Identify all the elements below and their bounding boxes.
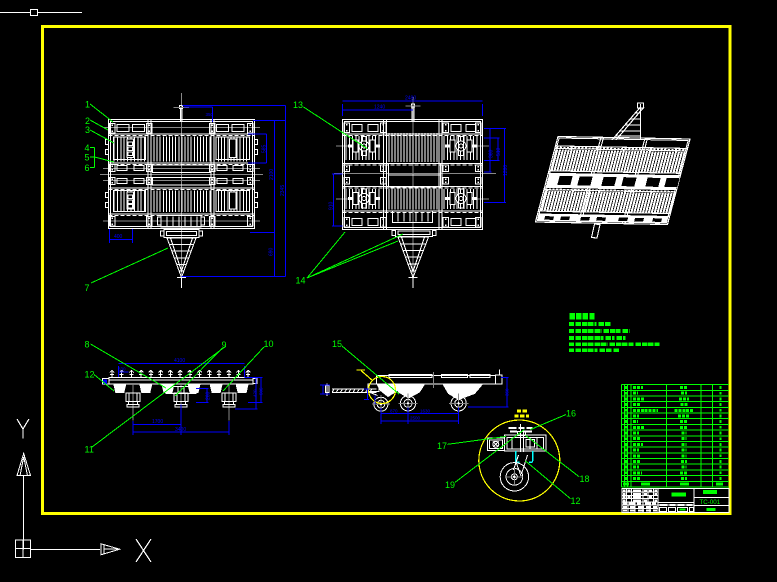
svg-text:3: 3 (85, 125, 90, 135)
svg-text:870: 870 (390, 408, 398, 413)
svg-text:910: 910 (329, 201, 335, 210)
svg-text:690: 690 (269, 247, 275, 256)
svg-text:350: 350 (505, 388, 510, 396)
svg-text:585: 585 (262, 144, 268, 153)
svg-text:12: 12 (571, 496, 581, 506)
svg-text:6: 6 (85, 163, 90, 173)
svg-text:2500: 2500 (410, 416, 421, 421)
svg-text:350: 350 (206, 112, 214, 117)
svg-text:3400: 3400 (175, 427, 186, 433)
svg-text:2480: 2480 (405, 96, 416, 102)
svg-text:11: 11 (85, 445, 94, 455)
svg-text:2100: 2100 (269, 169, 275, 180)
svg-text:510: 510 (496, 147, 502, 156)
svg-text:5: 5 (85, 153, 90, 163)
svg-text:18: 18 (580, 474, 590, 484)
svg-text:1700: 1700 (152, 419, 163, 425)
svg-text:17: 17 (437, 441, 447, 451)
svg-text:10: 10 (264, 339, 274, 349)
svg-text:400: 400 (114, 234, 123, 240)
svg-text:4: 4 (85, 143, 90, 153)
svg-text:505: 505 (258, 387, 263, 395)
svg-text:8: 8 (85, 340, 90, 350)
svg-text:19: 19 (445, 480, 455, 490)
svg-text:13: 13 (293, 100, 303, 110)
svg-text:4100: 4100 (174, 358, 185, 364)
svg-text:12: 12 (85, 370, 95, 380)
svg-text:1240: 1240 (374, 105, 385, 111)
svg-text:360: 360 (489, 149, 495, 158)
svg-text:1630: 1630 (420, 408, 431, 413)
svg-text:15: 15 (332, 339, 342, 349)
svg-text:14: 14 (296, 276, 306, 286)
svg-text:1: 1 (85, 100, 90, 110)
svg-text:2345: 2345 (280, 185, 286, 196)
svg-text:7: 7 (85, 283, 90, 293)
svg-text:330: 330 (118, 367, 126, 372)
svg-text:420: 420 (253, 389, 258, 397)
svg-text:260: 260 (206, 391, 212, 400)
svg-text:1280: 1280 (503, 165, 509, 176)
svg-text:16: 16 (566, 409, 576, 419)
svg-text:TC-001: TC-001 (700, 499, 721, 506)
